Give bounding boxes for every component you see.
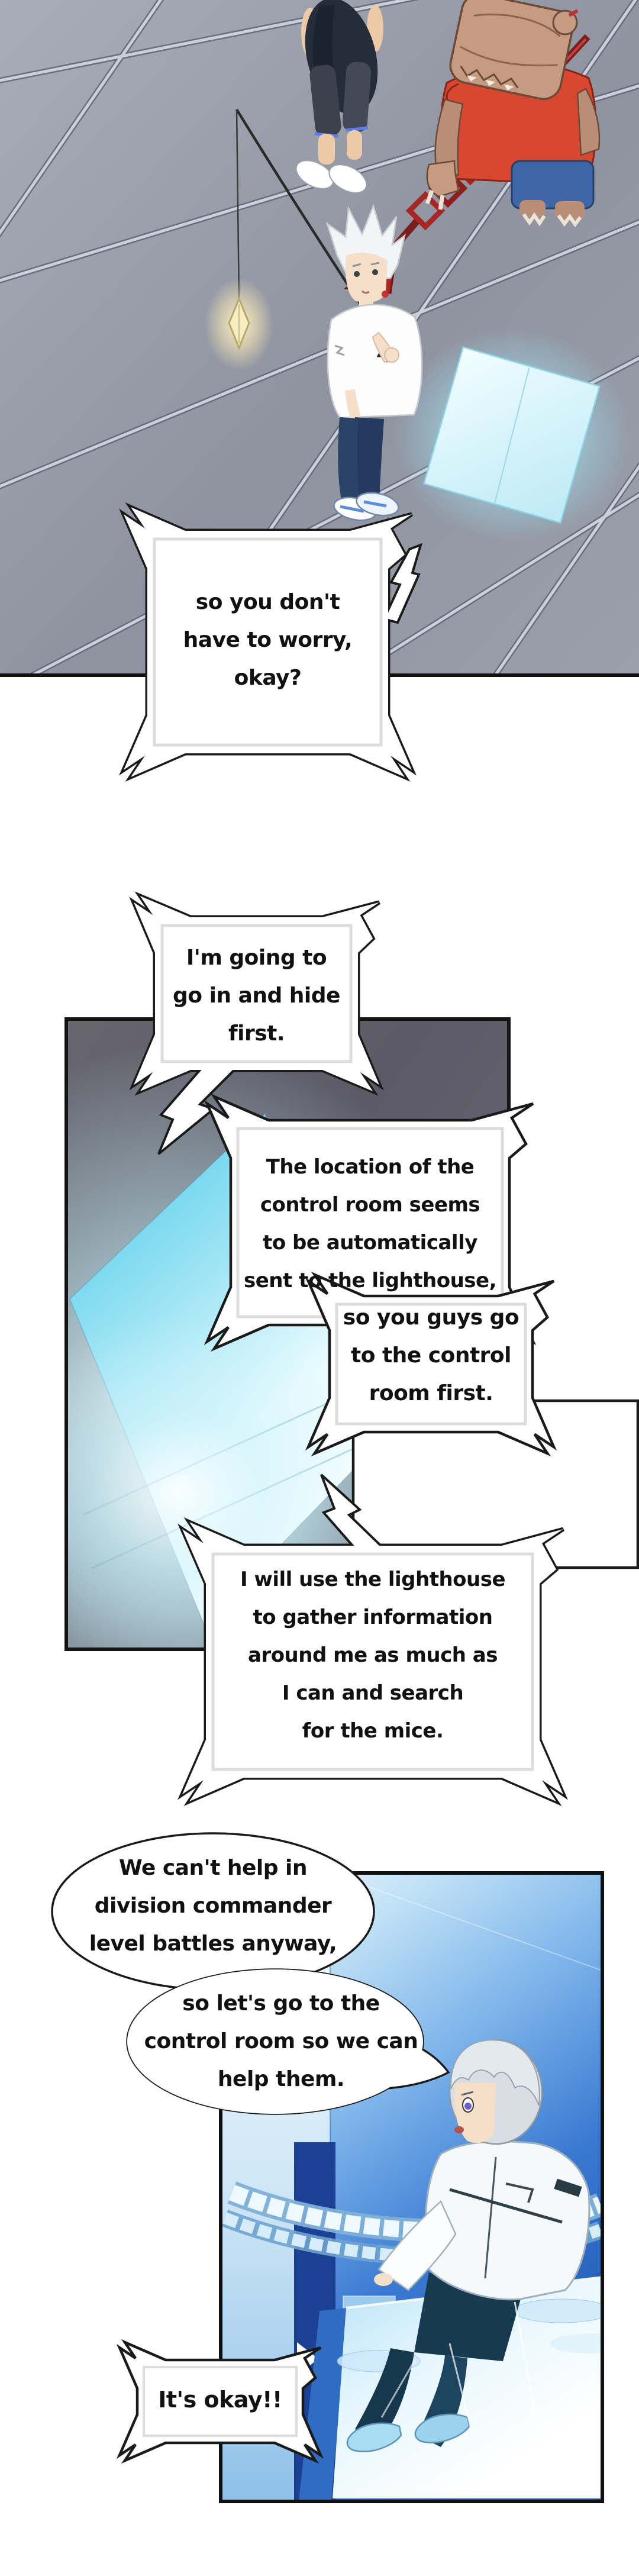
bubble-text-3b: so you guys go to the control room first…	[330, 1299, 532, 1413]
bubble-text-5a: We can't help in division commander leve…	[62, 1849, 364, 1963]
bubble-text-6: It's okay!!	[142, 2386, 298, 2413]
glowing-lure-icon	[205, 278, 273, 370]
bubble-text-2: I'm going to go in and hide first.	[155, 939, 358, 1053]
bubble-text-5b: so let's go to the control room so we ca…	[127, 1985, 435, 2098]
bubble-text-3a: The location of the control room seems t…	[231, 1148, 509, 1300]
webtoon-page: so you don't have to worry, okay? I'm go…	[0, 0, 639, 2576]
holo-disc-icon	[550, 2333, 633, 2353]
holo-disc-icon	[514, 2299, 611, 2323]
lighthouse-cube-icon	[393, 328, 630, 541]
bubble-text-1: so you don't have to worry, okay?	[147, 583, 388, 697]
panel-floor-scene	[0, 0, 639, 939]
bubble-text-4: I will use the lighthouse to gather info…	[206, 1561, 540, 1750]
